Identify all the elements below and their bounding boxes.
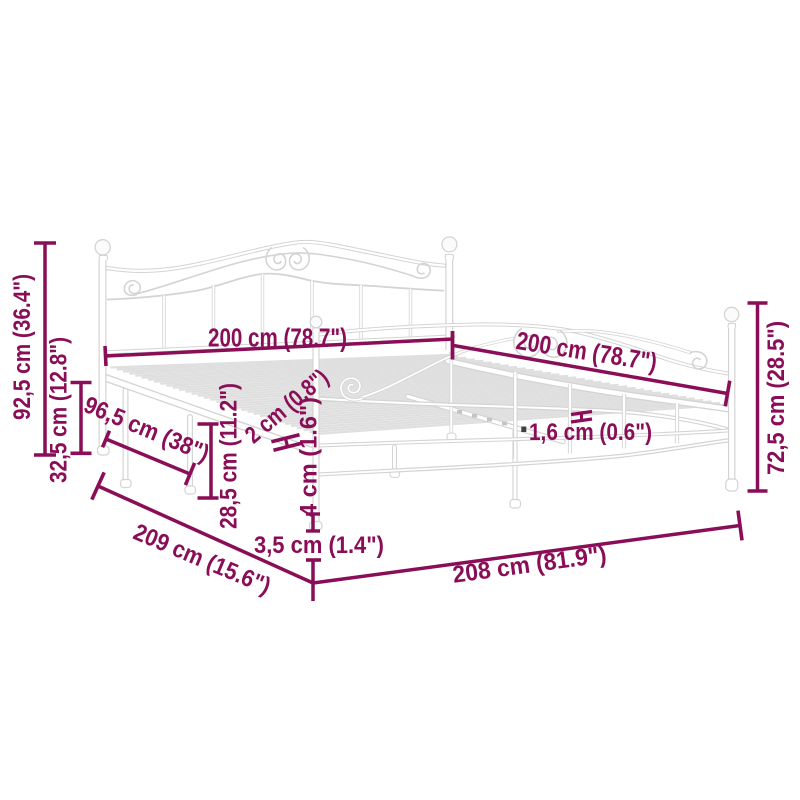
svg-text:1,6 cm (0.6"): 1,6 cm (0.6") bbox=[529, 419, 652, 446]
svg-text:32,5 cm (12.8"): 32,5 cm (12.8") bbox=[46, 337, 73, 483]
svg-text:28,5 cm (11.2"): 28,5 cm (11.2") bbox=[216, 383, 243, 529]
svg-text:72,5 cm (28.5"): 72,5 cm (28.5") bbox=[763, 321, 790, 475]
svg-text:200 cm (78.7"): 200 cm (78.7") bbox=[208, 325, 347, 353]
svg-text:4 cm (1.6"): 4 cm (1.6") bbox=[296, 397, 323, 517]
svg-text:3,5 cm (1.4"): 3,5 cm (1.4") bbox=[254, 532, 384, 559]
svg-text:92,5 cm (36.4"): 92,5 cm (36.4") bbox=[9, 274, 36, 420]
